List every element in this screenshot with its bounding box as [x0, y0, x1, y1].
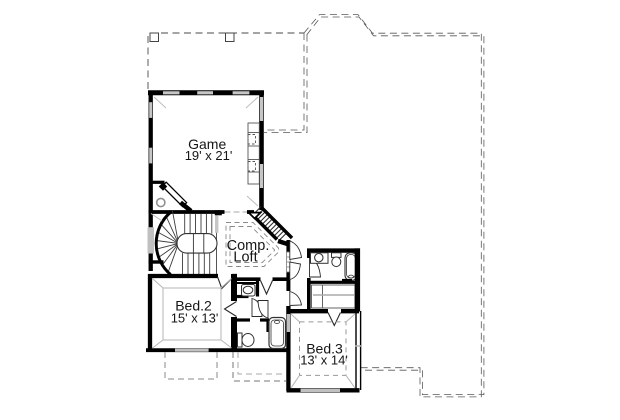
- svg-text:15' x 13': 15' x 13': [171, 310, 219, 325]
- svg-text:13' x 14': 13' x 14': [300, 353, 348, 368]
- svg-text:19' x 21': 19' x 21': [185, 148, 233, 163]
- svg-text:Loft: Loft: [233, 250, 257, 266]
